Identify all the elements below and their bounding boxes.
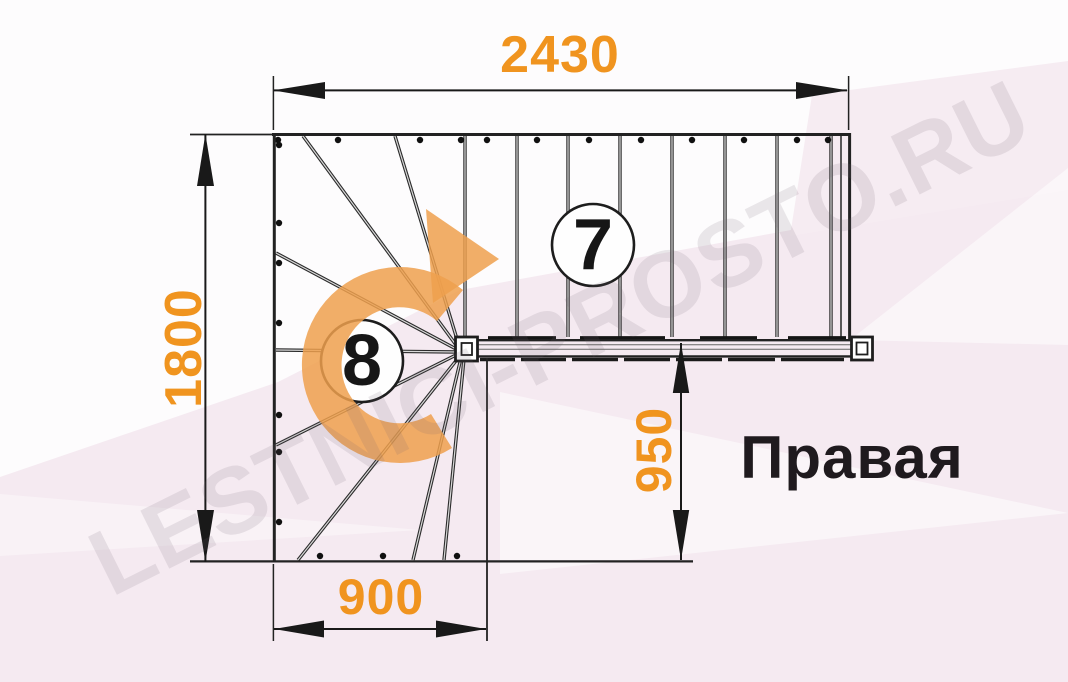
dimension-right-label: 950 [629, 350, 681, 550]
dimension-top-label: 2430 [420, 29, 700, 81]
dimension-bottom-label: 900 [281, 572, 481, 622]
winder-step-count: 8 [302, 325, 422, 397]
staircase-plan-canvas: LESTNICI-PROSTO.RU 2430 1800 900 950 7 8… [0, 0, 1068, 682]
newel-post-right [852, 337, 873, 360]
dimension-left-label: 1800 [158, 248, 210, 448]
orientation-label: Правая [690, 428, 1014, 488]
straight-flight-step-count: 7 [533, 209, 653, 281]
